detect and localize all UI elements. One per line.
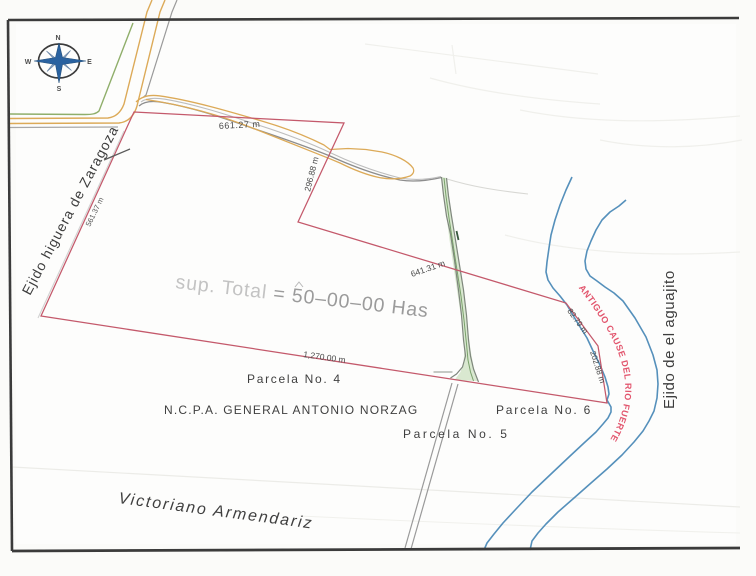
- svg-text:Ejido de el aguajito: Ejido de el aguajito: [661, 270, 678, 409]
- svg-text:Parcela No. 5: Parcela No. 5: [403, 427, 510, 441]
- svg-text:E: E: [87, 59, 92, 66]
- svg-text:N: N: [55, 35, 60, 42]
- svg-text:W: W: [25, 59, 32, 66]
- svg-text:N.C.P.A. GENERAL ANTONIO NO: N.C.P.A. GENERAL ANTONIO NORZAG: [164, 403, 418, 417]
- svg-text:S: S: [57, 86, 62, 93]
- svg-text:Parcela No. 6: Parcela No. 6: [496, 403, 592, 417]
- svg-text:Parcela No. 4: Parcela No. 4: [247, 372, 342, 386]
